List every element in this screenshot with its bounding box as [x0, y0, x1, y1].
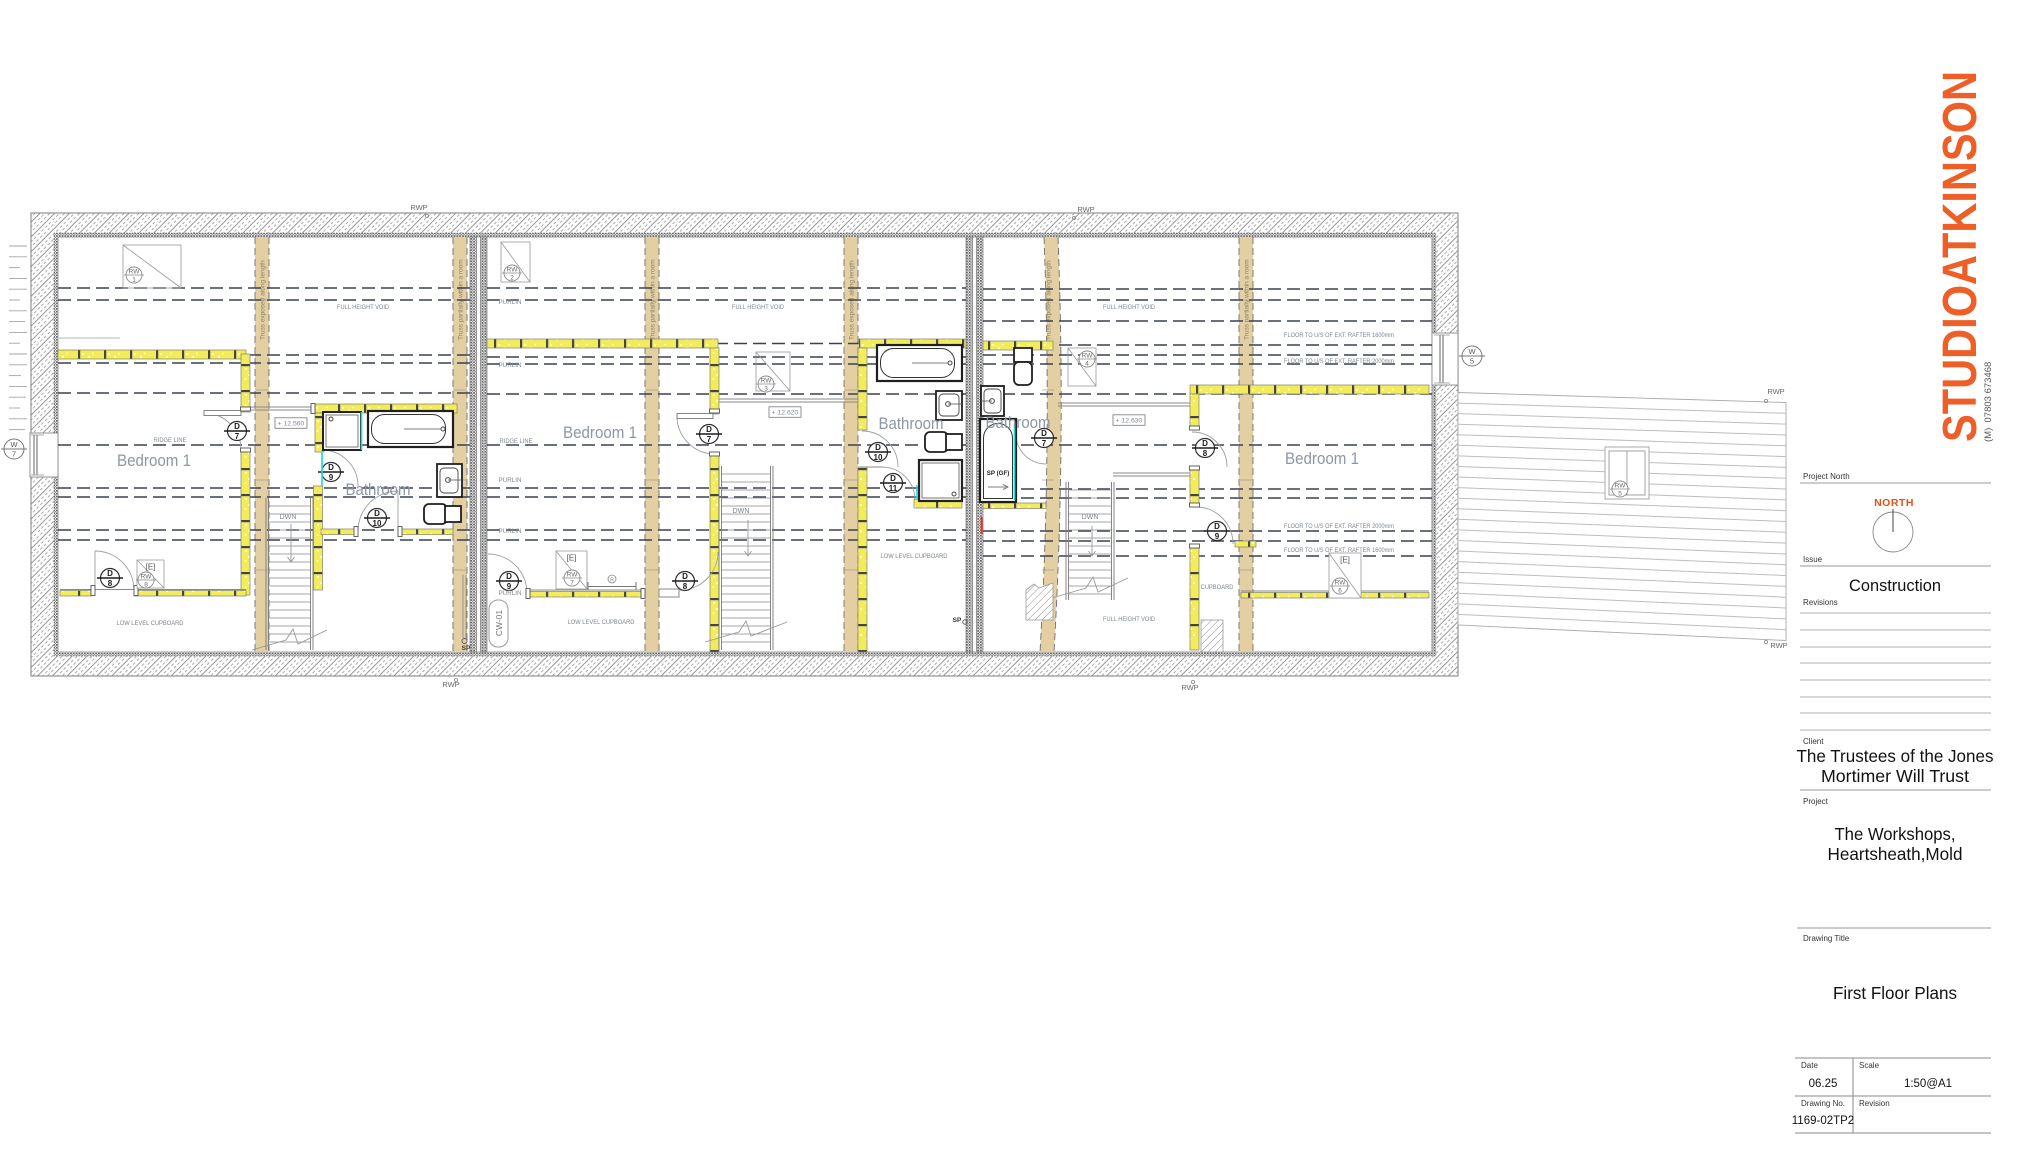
svg-text:FULL HEIGHT VOID: FULL HEIGHT VOID: [732, 304, 784, 311]
svg-text:Revision: Revision: [1859, 1099, 1890, 1108]
svg-text:11: 11: [889, 484, 898, 493]
svg-text:RW: RW: [141, 573, 153, 580]
svg-text:SP: SP: [462, 645, 471, 652]
svg-text:RWP: RWP: [1767, 387, 1784, 396]
svg-text:RW: RW: [1615, 482, 1627, 489]
svg-text:Bedroom 1: Bedroom 1: [1285, 450, 1359, 468]
svg-text:5: 5: [1618, 491, 1622, 498]
svg-text:PURLIN: PURLIN: [499, 477, 522, 484]
svg-text:W: W: [10, 440, 18, 449]
svg-text:RIDGE LINE: RIDGE LINE: [154, 437, 188, 444]
svg-text:Scale: Scale: [1859, 1061, 1880, 1070]
svg-text:First Floor Plans: First Floor Plans: [1833, 983, 1957, 1003]
svg-text:CUPBOARD: CUPBOARD: [1201, 584, 1234, 591]
svg-text:Bathroom: Bathroom: [879, 415, 944, 433]
svg-text:Project North: Project North: [1803, 472, 1850, 481]
svg-text:D: D: [328, 463, 334, 472]
svg-text:D: D: [1202, 439, 1208, 448]
svg-text:Project: Project: [1803, 797, 1829, 806]
svg-text:Bathroom: Bathroom: [346, 481, 411, 499]
svg-text:PURLIN: PURLIN: [499, 528, 522, 535]
svg-text:Revisions: Revisions: [1803, 598, 1838, 607]
svg-text:Client: Client: [1803, 737, 1824, 746]
svg-text:Date: Date: [1801, 1061, 1818, 1070]
svg-text:9: 9: [329, 473, 334, 482]
svg-text:RW: RW: [507, 266, 519, 273]
svg-text:SP: SP: [953, 617, 962, 624]
svg-text:D: D: [706, 425, 712, 434]
svg-text:10: 10: [874, 453, 883, 462]
svg-text:RWP: RWP: [1770, 641, 1787, 650]
svg-text:LOW LEVEL CUPBOARD: LOW LEVEL CUPBOARD: [568, 619, 635, 626]
svg-text:[E]: [E]: [567, 554, 577, 563]
svg-text:8: 8: [144, 582, 148, 589]
svg-text:4: 4: [1085, 361, 1089, 368]
svg-text:SP (GF): SP (GF): [987, 470, 1010, 477]
svg-text:DWN: DWN: [280, 512, 297, 521]
svg-text:PURLIN: PURLIN: [499, 590, 522, 597]
svg-text:STUDIOATKINSON: STUDIOATKINSON: [1934, 71, 1987, 442]
svg-text:06.25: 06.25: [1809, 1078, 1838, 1090]
svg-text:PURLIN: PURLIN: [499, 362, 522, 369]
svg-text:10: 10: [373, 519, 382, 528]
svg-text:1: 1: [132, 277, 136, 284]
svg-text:Drawing Title: Drawing Title: [1803, 934, 1850, 943]
svg-text:RW: RW: [129, 268, 141, 275]
svg-text:Drawing No.: Drawing No.: [1801, 1099, 1845, 1108]
svg-text:The Trustees of the Jones: The Trustees of the Jones: [1797, 746, 1994, 766]
svg-text:LOW LEVEL CUPBOARD: LOW LEVEL CUPBOARD: [881, 553, 948, 560]
svg-text:CW-01: CW-01: [494, 610, 504, 637]
svg-text:1:50@A1: 1:50@A1: [1904, 1078, 1952, 1090]
svg-text:RW: RW: [761, 377, 773, 384]
svg-text:FLOOR TO U/S OF EXT. RAFTER 20: FLOOR TO U/S OF EXT. RAFTER 2000mm: [1284, 358, 1394, 365]
svg-text:Construction: Construction: [1849, 576, 1941, 595]
svg-text:RW: RW: [1335, 579, 1347, 586]
svg-text:RWP: RWP: [410, 203, 427, 212]
svg-text:7: 7: [12, 450, 16, 459]
svg-text:D: D: [374, 509, 380, 518]
svg-text:Heartsheath,Mold: Heartsheath,Mold: [1828, 844, 1963, 864]
svg-text:Bathroom: Bathroom: [986, 414, 1051, 432]
svg-text:The Workshops,: The Workshops,: [1835, 824, 1956, 844]
svg-text:Bedroom 1: Bedroom 1: [117, 452, 191, 470]
svg-text:DWN: DWN: [733, 506, 750, 515]
svg-text:1169-02TP2: 1169-02TP2: [1792, 1115, 1854, 1127]
svg-text:+ 12.630: + 12.630: [1116, 417, 1143, 424]
svg-text:7: 7: [707, 435, 712, 444]
svg-text:7: 7: [235, 432, 240, 441]
svg-text:3: 3: [764, 386, 768, 393]
svg-text:D: D: [107, 569, 113, 578]
svg-text:FULL HEIGHT VOID: FULL HEIGHT VOID: [1103, 304, 1155, 311]
svg-text:RW: RW: [567, 571, 579, 578]
svg-text:W: W: [1468, 347, 1476, 356]
svg-text:5: 5: [1470, 357, 1474, 366]
svg-text:Bedroom 1: Bedroom 1: [563, 424, 637, 442]
svg-text:NORTH: NORTH: [1874, 497, 1914, 509]
svg-text:PURLIN: PURLIN: [499, 299, 522, 306]
svg-text:RW: RW: [1082, 352, 1094, 359]
svg-text:RIDGE LINE: RIDGE LINE: [500, 438, 534, 445]
svg-text:FLOOR TO U/S OF EXT. RAFTER 16: FLOOR TO U/S OF EXT. RAFTER 1600mm: [1284, 332, 1394, 339]
svg-text:8: 8: [683, 582, 688, 591]
svg-text:9: 9: [1215, 532, 1220, 541]
svg-text:6: 6: [1338, 588, 1342, 595]
svg-text:8: 8: [1203, 449, 1208, 458]
svg-text:RWP: RWP: [1181, 683, 1198, 692]
svg-text:+ 12.620: + 12.620: [772, 409, 799, 416]
svg-text:7: 7: [570, 580, 574, 587]
svg-text:(M) 07803 673468: (M) 07803 673468: [1983, 362, 1994, 442]
svg-text:FULL HEIGHT VOID: FULL HEIGHT VOID: [1103, 616, 1155, 623]
svg-text:[E]: [E]: [1340, 556, 1350, 565]
svg-text:DWN: DWN: [1082, 512, 1099, 521]
svg-text:D: D: [875, 443, 881, 452]
svg-text:RWP: RWP: [1077, 205, 1094, 214]
svg-text:8: 8: [108, 579, 113, 588]
svg-text:LOW LEVEL CUPBOARD: LOW LEVEL CUPBOARD: [117, 620, 184, 627]
svg-text:FLOOR TO U/S OF EXT. RAFTER 20: FLOOR TO U/S OF EXT. RAFTER 2000mm: [1284, 523, 1394, 530]
svg-text:D: D: [506, 572, 512, 581]
svg-text:2: 2: [510, 275, 514, 282]
svg-text:Issue: Issue: [1803, 555, 1823, 564]
svg-text:R: R: [610, 578, 614, 584]
svg-text:[E]: [E]: [146, 563, 156, 572]
svg-text:Mortimer Will Trust: Mortimer Will Trust: [1821, 766, 1969, 786]
svg-text:D: D: [890, 474, 896, 483]
svg-text:D: D: [234, 422, 240, 431]
svg-text:D: D: [682, 572, 688, 581]
svg-text:+ 12.560: + 12.560: [278, 420, 305, 427]
svg-text:7: 7: [1042, 439, 1047, 448]
svg-text:FULL HEIGHT VOID: FULL HEIGHT VOID: [337, 304, 389, 311]
svg-text:D: D: [1214, 522, 1220, 531]
